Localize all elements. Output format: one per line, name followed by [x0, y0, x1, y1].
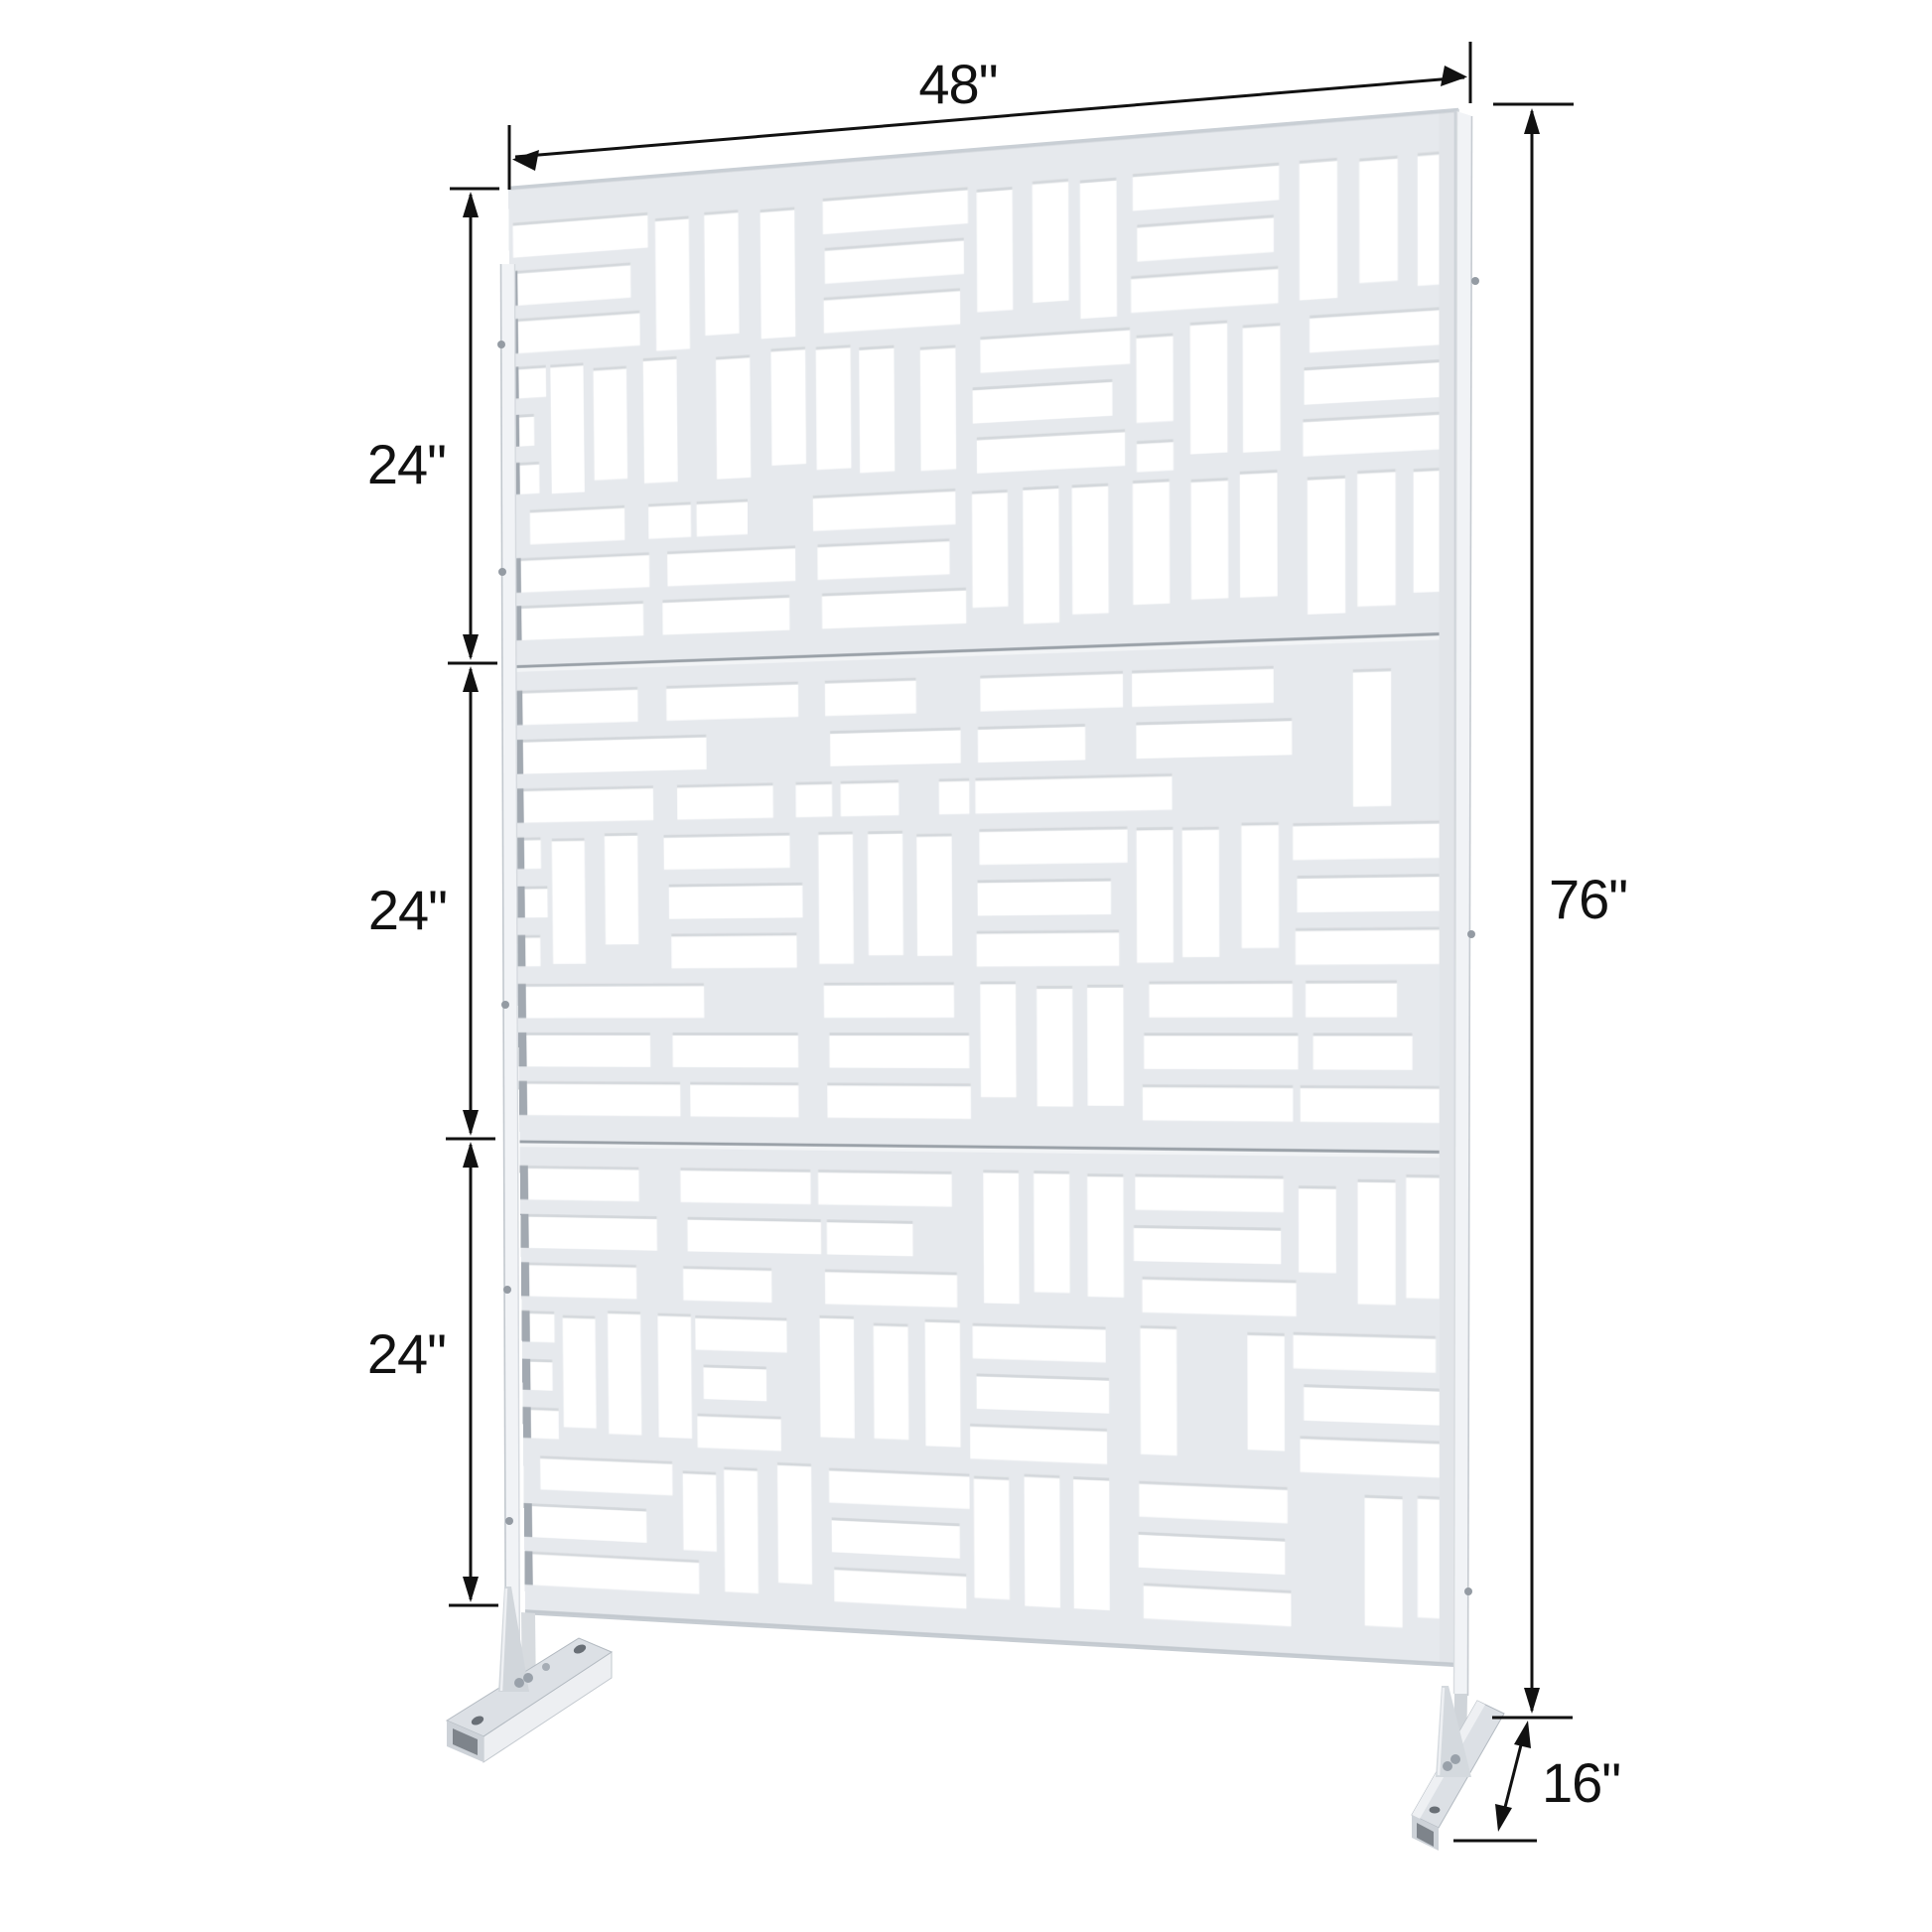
svg-text:24": 24" — [367, 1322, 446, 1385]
svg-text:76": 76" — [1549, 868, 1627, 930]
svg-text:48": 48" — [918, 53, 997, 115]
svg-text:24": 24" — [368, 879, 447, 941]
svg-text:16": 16" — [1542, 1751, 1620, 1814]
svg-text:24": 24" — [367, 433, 446, 495]
